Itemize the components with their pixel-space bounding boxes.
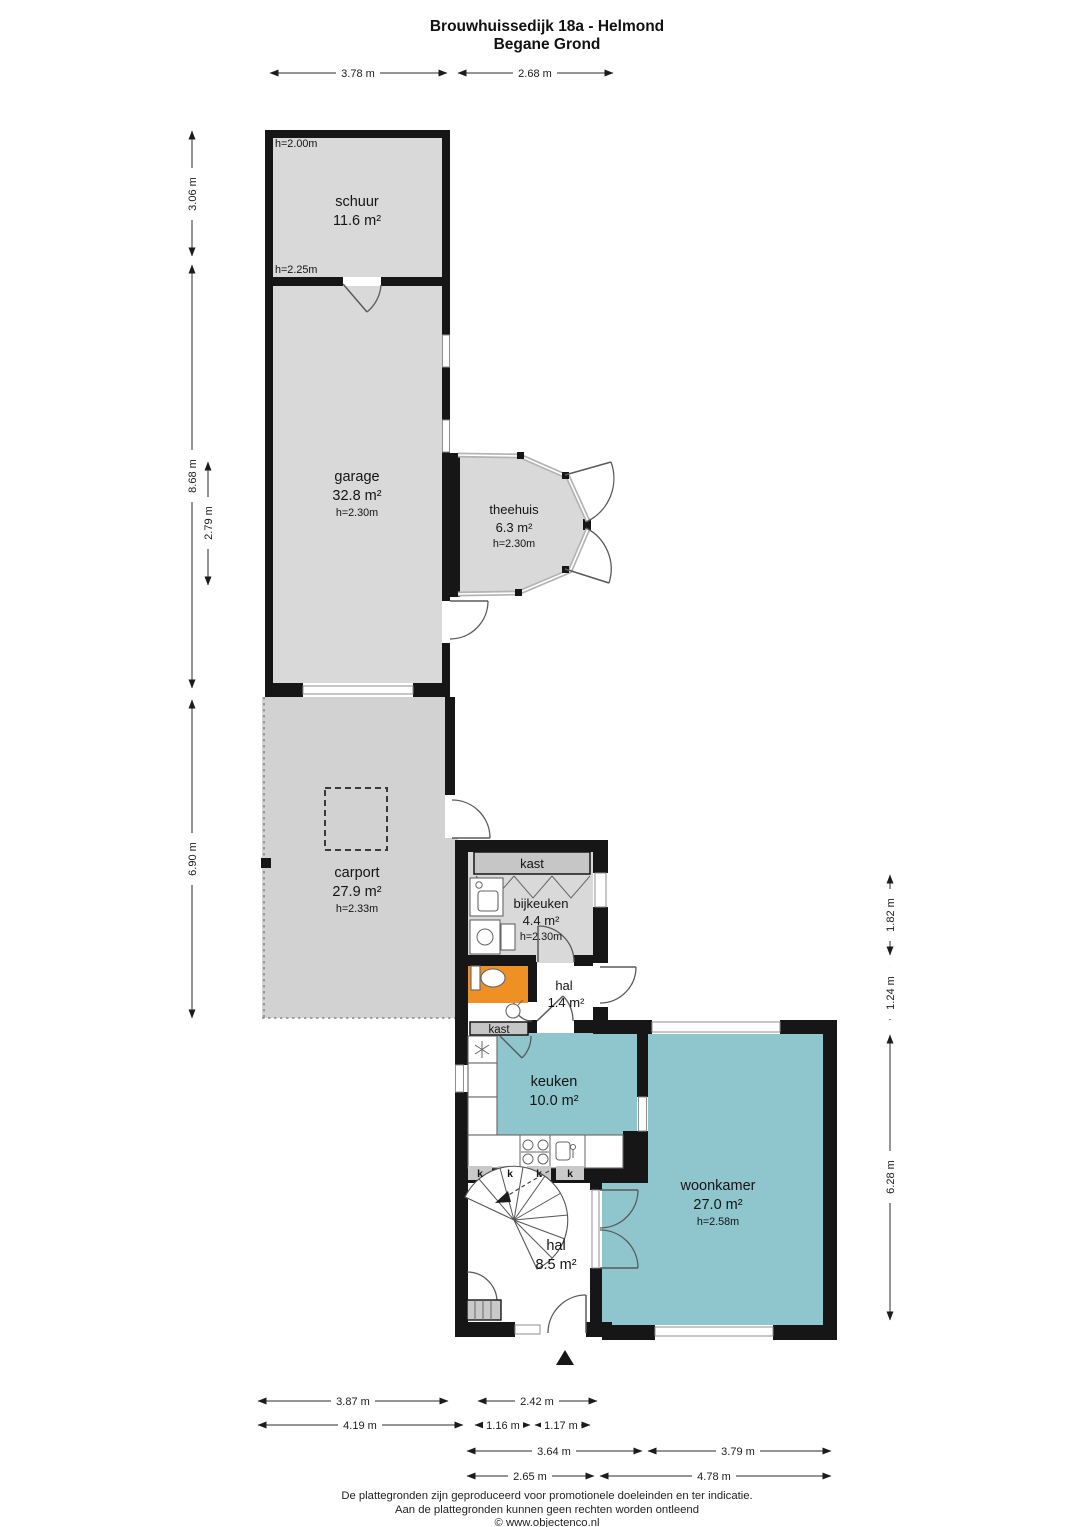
svg-text:3.79 m: 3.79 m (721, 1446, 755, 1458)
svg-text:1.17 m: 1.17 m (544, 1420, 578, 1432)
dim-bottom-3: 4.19 m (258, 1418, 463, 1432)
window (443, 335, 450, 367)
entrance-arrow-icon (556, 1350, 574, 1365)
keuken-area: 10.0 m² (529, 1093, 578, 1109)
dim-left-1: 3.06 m (186, 131, 199, 256)
window (639, 1097, 647, 1131)
window (515, 1325, 540, 1334)
kitchen-counter (468, 1135, 623, 1168)
footer: De plattegronden zijn geproduceerd voor … (341, 1490, 752, 1527)
svg-text:1.82 m: 1.82 m (885, 898, 897, 932)
door-carport-side (452, 800, 490, 838)
theehuis-name: theehuis (489, 502, 539, 517)
dim-left-2: 8.68 m (186, 265, 199, 688)
door-garage-side (450, 601, 488, 639)
carport-name: carport (334, 865, 379, 881)
k-label: k (536, 1168, 542, 1180)
dim-bottom-2: 2.42 m (478, 1394, 597, 1408)
appliance-cabinet (468, 1097, 497, 1135)
svg-text:2.65 m: 2.65 m (513, 1471, 547, 1483)
hal-klein-area: 1.4 m² (548, 995, 586, 1010)
svg-text:1.16 m: 1.16 m (486, 1420, 520, 1432)
dim-right-2: 1.24 m (884, 967, 897, 1020)
kast-bijkeuken-label: kast (520, 856, 544, 871)
window (443, 420, 450, 452)
carport-post (261, 858, 271, 868)
laundry-sink-icon (470, 878, 503, 916)
bijkeuken-name: bijkeuken (514, 896, 569, 911)
hal-klein-name: hal (555, 978, 572, 993)
svg-text:2.68 m: 2.68 m (518, 68, 552, 80)
schuur-area: 11.6 m² (333, 213, 381, 229)
window (655, 1327, 773, 1336)
keuken-name: keuken (531, 1074, 578, 1090)
bijkeuken-area: 4.4 m² (523, 913, 561, 928)
dim-right-3: 6.28 m (884, 1035, 897, 1320)
svg-text:3.64 m: 3.64 m (537, 1446, 571, 1458)
svg-text:2.79 m: 2.79 m (203, 506, 215, 540)
carport-area: 27.9 m² (332, 884, 381, 900)
woonkamer-height: h=2.58m (697, 1216, 739, 1228)
appliance-cabinet (468, 1063, 497, 1097)
k-label: k (477, 1168, 483, 1180)
bijkeuken-height: h=2.30m (520, 931, 562, 943)
dim-bottom-5: 1.17 m (535, 1418, 590, 1432)
front-door (548, 1295, 586, 1333)
window (456, 1065, 464, 1092)
svg-text:4.78 m: 4.78 m (697, 1471, 731, 1483)
window (595, 873, 606, 907)
dim-bottom-8: 2.65 m (467, 1469, 594, 1483)
dim-bottom-1: 3.87 m (258, 1394, 448, 1408)
hal-groot-area: 8.5 m² (535, 1257, 576, 1273)
floorplan-page: Brouwhuissedijk 18a - Helmond Begane Gro… (0, 0, 1080, 1527)
svg-text:6.28 m: 6.28 m (885, 1160, 897, 1194)
svg-text:3.06 m: 3.06 m (187, 177, 199, 211)
garage-name: garage (334, 469, 379, 485)
carport-height: h=2.33m (336, 903, 378, 915)
dim-bottom-6: 3.64 m (467, 1444, 642, 1458)
window (303, 686, 413, 694)
dim-top-1: 3.78 m (270, 66, 447, 80)
svg-text:3.78 m: 3.78 m (341, 68, 375, 80)
svg-text:1.24 m: 1.24 m (885, 976, 897, 1010)
garage-height: h=2.30m (336, 507, 378, 519)
k-label: k (567, 1168, 573, 1180)
footer-line-3: © www.objectenco.nl (494, 1517, 599, 1527)
page-title: Brouwhuissedijk 18a - Helmond (430, 18, 664, 35)
meter-closet-icon (467, 1300, 501, 1320)
svg-text:8.68 m: 8.68 m (187, 459, 199, 493)
washing-machine-icon (470, 920, 515, 954)
schuur-height-top-label: h=2.00m (275, 138, 317, 150)
dim-left-3: 2.79 m (202, 462, 215, 585)
schuur-height-bottom-label: h=2.25m (275, 264, 317, 276)
woonkamer-name: woonkamer (680, 1178, 756, 1194)
door-meter-closet (467, 1272, 497, 1302)
dim-top-2: 2.68 m (458, 66, 613, 80)
door-hal-exterior (600, 967, 636, 1003)
footer-line-1: De plattegronden zijn geproduceerd voor … (341, 1490, 752, 1502)
dim-bottom-9: 4.78 m (600, 1469, 831, 1483)
svg-text:6.90 m: 6.90 m (187, 842, 199, 876)
page-subtitle: Begane Grond (494, 36, 601, 53)
k-label: k (507, 1168, 513, 1180)
svg-text:4.19 m: 4.19 m (343, 1420, 377, 1432)
kast-small-label: kast (488, 1024, 510, 1036)
hal-groot-name: hal (546, 1238, 565, 1254)
fridge-icon (468, 1036, 497, 1063)
woonkamer-area: 27.0 m² (693, 1197, 742, 1213)
window (652, 1022, 780, 1032)
glass-double-door-frame (592, 1190, 599, 1268)
dim-bottom-4: 1.16 m (475, 1418, 530, 1432)
footer-line-2: Aan de plattegronden kunnen geen rechten… (395, 1504, 699, 1516)
dim-left-4: 6.90 m (186, 700, 199, 1018)
theehuis-height: h=2.30m (493, 538, 535, 550)
room-carport (262, 697, 458, 1018)
svg-text:2.42 m: 2.42 m (520, 1396, 554, 1408)
theehuis-area: 6.3 m² (496, 520, 534, 535)
svg-text:3.87 m: 3.87 m (336, 1396, 370, 1408)
dim-right-1: 1.82 m (884, 875, 897, 955)
schuur-name: schuur (335, 194, 379, 210)
dim-bottom-7: 3.79 m (648, 1444, 831, 1458)
garage-area: 32.8 m² (332, 488, 381, 504)
